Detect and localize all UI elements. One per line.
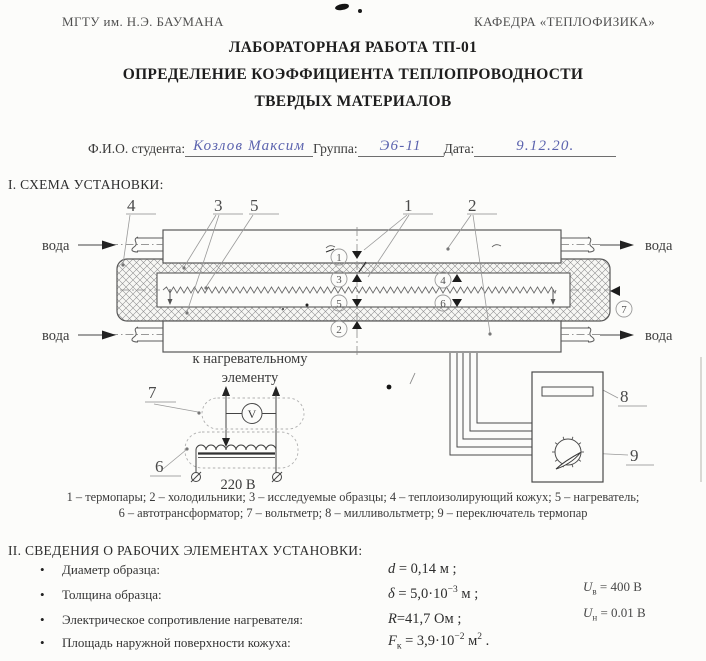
water-label: вода bbox=[645, 238, 673, 254]
student-name-field[interactable]: Козлов Максим bbox=[185, 139, 313, 157]
water-label: вода bbox=[645, 328, 673, 344]
mains-terminal-left bbox=[191, 472, 201, 482]
date-field[interactable]: 9.12.20. bbox=[474, 139, 616, 157]
svg-text:6: 6 bbox=[440, 298, 446, 310]
svg-text:5: 5 bbox=[336, 298, 342, 310]
svg-text:4: 4 bbox=[440, 275, 446, 287]
water-in-top: вода bbox=[42, 238, 116, 254]
item-value-casing-area: Fк = 3,9·10−2 м2 . bbox=[388, 632, 489, 652]
student-info-row: Ф.И.О. студента: Козлов Максим Группа: Э… bbox=[88, 139, 616, 157]
callout-6: 6 bbox=[155, 457, 164, 476]
item-value-resistance: R=41,7 Ом ; bbox=[388, 610, 461, 630]
group-handwriting: Э6-11 bbox=[380, 138, 422, 154]
water-out-top: вода bbox=[600, 238, 673, 254]
mains-terminal-right bbox=[272, 472, 282, 482]
tp-triangle-left bbox=[610, 286, 620, 296]
item-label-resistance: Электрическое сопротивление нагревателя: bbox=[62, 612, 303, 628]
tp-circle-7: 7 bbox=[616, 301, 632, 317]
callout-5: 5 bbox=[250, 196, 259, 215]
scan-edge-artifact bbox=[700, 357, 702, 482]
mains-voltage-label: 220 В bbox=[220, 477, 255, 490]
ink-smudge bbox=[335, 3, 350, 11]
callout-8: 8 bbox=[620, 387, 629, 406]
bullet: • bbox=[40, 587, 45, 603]
callout-3: 3 bbox=[214, 196, 223, 215]
legend-line-1: 1 – термопары; 2 – холодильники; 3 – исс… bbox=[0, 490, 706, 505]
legend-line-2: 6 – автотрансформатор; 7 – вольтметр; 8 … bbox=[0, 506, 706, 521]
department-name: КАФЕДРА «ТЕПЛОФИЗИКА» bbox=[474, 14, 655, 30]
arrow-up-icon bbox=[272, 386, 280, 396]
callout-1: 1 bbox=[404, 196, 413, 215]
bullet: • bbox=[40, 562, 45, 578]
water-in-bottom: вода bbox=[42, 328, 116, 344]
callout-7: 7 bbox=[148, 383, 157, 402]
thermocouple-wires bbox=[450, 353, 532, 455]
bullet: • bbox=[40, 612, 45, 628]
arrow-right-icon bbox=[102, 331, 116, 340]
heater-supply-circuit: V 220 В bbox=[185, 386, 304, 490]
lab-subtitle-1: ОПРЕДЕЛЕНИЕ КОЭФФИЦИЕНТА ТЕПЛОПРОВОДНОСТ… bbox=[0, 66, 706, 84]
student-name-handwriting: Козлов Максим bbox=[193, 138, 305, 154]
student-name-label: Ф.И.О. студента: bbox=[88, 141, 185, 157]
item-label-diameter: Диаметр образца: bbox=[62, 562, 160, 578]
group-label: Группа: bbox=[313, 141, 357, 157]
top-cooler bbox=[163, 230, 561, 263]
water-label: вода bbox=[42, 238, 70, 254]
lab-subtitle-2: ТВЕРДЫХ МАТЕРИАЛОВ bbox=[0, 93, 706, 111]
millivoltmeter-display bbox=[542, 387, 593, 396]
date-label: Дата: bbox=[444, 141, 475, 157]
arrow-right-icon bbox=[620, 331, 634, 340]
callout-2: 2 bbox=[468, 196, 477, 215]
side-note-millivoltmeter-range: Uн = 0.01 В bbox=[583, 605, 646, 623]
date-handwriting: 9.12.20. bbox=[516, 138, 574, 154]
group-field[interactable]: Э6-11 bbox=[358, 139, 444, 157]
bottom-cooler bbox=[163, 321, 561, 352]
water-out-bottom: вода bbox=[600, 328, 673, 344]
autotransformer-outline bbox=[185, 432, 298, 468]
arrow-up-icon bbox=[222, 386, 230, 396]
callout-4: 4 bbox=[127, 196, 136, 215]
item-value-thickness: δ = 5,0·10−3 м ; bbox=[388, 585, 478, 605]
scanned-lab-report-page: МГТУ им. Н.Э. БАУМАНА КАФЕДРА «ТЕПЛОФИЗИ… bbox=[0, 0, 706, 661]
bullet: • bbox=[40, 635, 45, 651]
svg-text:1: 1 bbox=[336, 252, 342, 264]
lab-title: ЛАБОРАТОРНАЯ РАБОТА ТП-01 bbox=[0, 39, 706, 57]
svg-text:3: 3 bbox=[336, 274, 342, 286]
callout-9: 9 bbox=[630, 446, 639, 465]
item-label-thickness: Толщина образца: bbox=[62, 587, 162, 603]
side-note-voltmeter-range: Uв = 400 В bbox=[583, 579, 642, 597]
ink-dot bbox=[358, 9, 362, 13]
section-2-heading: II. СВЕДЕНИЯ О РАБОЧИХ ЭЛЕМЕНТАХ УСТАНОВ… bbox=[8, 543, 362, 559]
item-label-casing-area: Площадь наружной поверхности кожуха: bbox=[62, 635, 291, 651]
installation-schematic: вода вода вода вода 1 3 5 bbox=[0, 190, 706, 490]
autotransformer-coil bbox=[196, 445, 276, 450]
voltmeter-symbol: V bbox=[248, 407, 257, 421]
svg-text:7: 7 bbox=[621, 304, 627, 316]
arrow-right-icon bbox=[620, 241, 634, 250]
water-label: вода bbox=[42, 328, 70, 344]
item-value-diameter: d = 0,14 м ; bbox=[388, 560, 457, 580]
arrow-right-icon bbox=[102, 241, 116, 250]
to-heater-note-line1: к нагревательному bbox=[193, 351, 309, 367]
university-name: МГТУ им. Н.Э. БАУМАНА bbox=[62, 14, 224, 30]
svg-text:2: 2 bbox=[336, 324, 342, 336]
to-heater-note-line2: элементу bbox=[222, 370, 279, 386]
